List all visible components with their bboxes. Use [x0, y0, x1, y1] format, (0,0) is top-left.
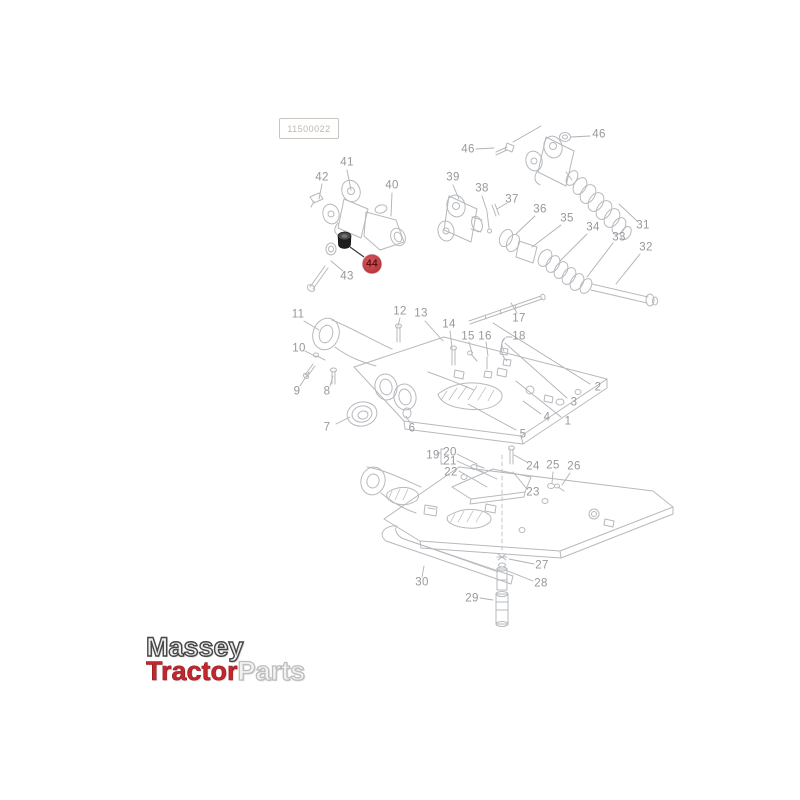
- part-label-41: 41: [340, 157, 353, 169]
- part-label-24: 24: [526, 461, 539, 473]
- part-label-1: 1: [565, 416, 572, 428]
- part-label-10: 10: [292, 343, 305, 355]
- part-label-2: 2: [595, 382, 602, 394]
- part-label-19: 19: [426, 450, 439, 462]
- part-label-13: 13: [414, 308, 427, 320]
- part-label-44-highlighted: 44: [363, 255, 382, 274]
- part-label-22: 22: [444, 467, 457, 479]
- part-label-34: 34: [586, 222, 599, 234]
- part-label-6: 6: [409, 423, 416, 435]
- part-label-42: 42: [315, 172, 328, 184]
- part-label-39: 39: [446, 172, 459, 184]
- part-label-40: 40: [385, 180, 398, 192]
- part-label-38: 38: [475, 183, 488, 195]
- logo-tractor: Tractor: [146, 656, 238, 686]
- part-label-29: 29: [465, 593, 478, 605]
- part-label-3: 3: [571, 397, 578, 409]
- part-label-31: 31: [636, 220, 649, 232]
- part-labels-layer: 1234567891011121314151617181920212223242…: [0, 0, 800, 800]
- part-label-35: 35: [560, 213, 573, 225]
- part-label-12: 12: [393, 306, 406, 318]
- part-label-32: 32: [639, 242, 652, 254]
- part-label-15: 15: [461, 331, 474, 343]
- part-label-4: 4: [544, 412, 551, 424]
- part-label-46: 46: [592, 129, 605, 141]
- part-label-46: 46: [461, 144, 474, 156]
- part-label-25: 25: [546, 460, 559, 472]
- part-label-14: 14: [442, 319, 455, 331]
- part-label-16: 16: [478, 331, 491, 343]
- part-label-5: 5: [520, 429, 527, 441]
- part-label-23: 23: [526, 487, 539, 499]
- part-label-7: 7: [324, 422, 331, 434]
- part-label-17: 17: [512, 313, 525, 325]
- part-label-33: 33: [612, 232, 625, 244]
- massey-tractor-parts-logo: Massey TractorParts: [146, 636, 305, 683]
- logo-parts: Parts: [238, 656, 306, 686]
- part-label-18: 18: [512, 331, 525, 343]
- part-label-43: 43: [340, 271, 353, 283]
- part-label-37: 37: [505, 194, 518, 206]
- part-label-11: 11: [292, 309, 305, 321]
- parts-diagram-page: 11500022 1234567891011121314151617181920…: [0, 0, 800, 800]
- part-label-30: 30: [415, 577, 428, 589]
- part-label-27: 27: [535, 560, 548, 572]
- part-label-26: 26: [567, 461, 580, 473]
- part-label-36: 36: [533, 204, 546, 216]
- part-label-9: 9: [294, 386, 301, 398]
- part-label-28: 28: [534, 578, 547, 590]
- part-label-8: 8: [324, 386, 331, 398]
- logo-line2: TractorParts: [146, 660, 305, 683]
